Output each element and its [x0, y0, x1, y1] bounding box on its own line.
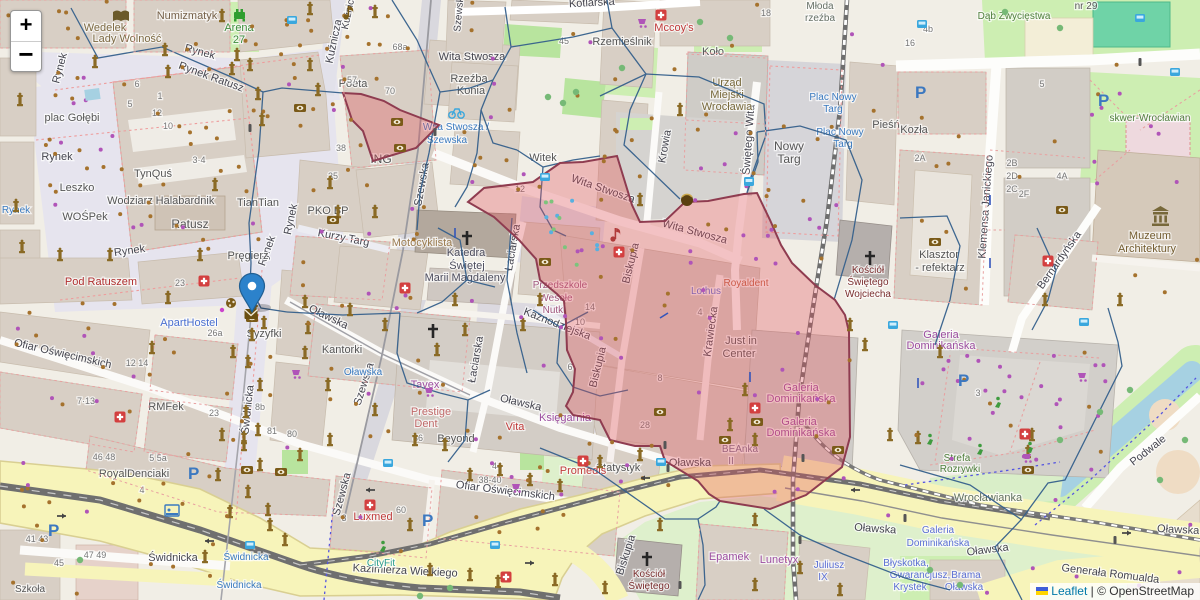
svg-text:38: 38 — [336, 143, 346, 153]
svg-text:P: P — [188, 464, 199, 483]
svg-text:Świdnicka: Świdnicka — [148, 551, 198, 564]
svg-text:41 43: 41 43 — [26, 534, 49, 544]
svg-text:8b: 8b — [255, 402, 265, 412]
svg-text:Motocyklista: Motocyklista — [392, 237, 453, 249]
svg-text:TianTian: TianTian — [237, 197, 279, 209]
svg-text:Rynek: Rynek — [41, 151, 73, 163]
svg-text:12 14: 12 14 — [126, 358, 149, 368]
svg-text:Brama: Brama — [951, 570, 981, 581]
svg-text:26a: 26a — [207, 328, 222, 338]
svg-text:18: 18 — [761, 8, 771, 18]
svg-text:Koło: Koło — [702, 46, 724, 58]
svg-text:P: P — [422, 511, 433, 530]
svg-text:4: 4 — [139, 485, 144, 495]
svg-text:Kościół: Kościół — [852, 265, 885, 276]
svg-text:P: P — [958, 371, 969, 390]
svg-text:RMFek: RMFek — [148, 401, 184, 413]
svg-text:2F: 2F — [1019, 189, 1030, 199]
svg-text:Prestige: Prestige — [411, 406, 451, 418]
svg-text:rzeźba: rzeźba — [805, 13, 835, 24]
svg-text:Galeria: Galeria — [922, 525, 955, 536]
svg-text:Świdnicka: Świdnicka — [223, 550, 268, 563]
svg-text:Kościół: Kościół — [633, 569, 666, 580]
svg-text:5: 5 — [127, 99, 132, 109]
svg-text:PKO BP: PKO BP — [308, 205, 349, 217]
svg-text:Klasztor: Klasztor — [919, 249, 959, 261]
svg-text:Beyond: Beyond — [437, 433, 474, 445]
svg-text:Arena: Arena — [224, 22, 254, 34]
svg-text:Kantorki: Kantorki — [322, 344, 362, 356]
svg-text:Pręgierz: Pręgierz — [228, 250, 269, 262]
svg-text:Wrocławia: Wrocławia — [702, 101, 753, 113]
svg-text:27: 27 — [233, 34, 245, 46]
svg-text:2B: 2B — [1006, 158, 1017, 168]
svg-text:Witek: Witek — [529, 152, 557, 164]
svg-text:68a: 68a — [392, 42, 407, 52]
svg-text:Dominikańska: Dominikańska — [907, 538, 970, 549]
svg-text:plac Gołębi: plac Gołębi — [44, 112, 99, 124]
svg-text:Katedra: Katedra — [447, 247, 486, 259]
svg-text:TynQuś: TynQuś — [134, 168, 172, 180]
svg-text:nr 29: nr 29 — [1075, 1, 1098, 12]
svg-text:57: 57 — [347, 75, 357, 85]
svg-text:Wodziarz: Wodziarz — [107, 195, 153, 207]
svg-text:Oławska: Oławska — [1157, 523, 1200, 537]
svg-text:6: 6 — [134, 79, 139, 89]
svg-text:Nutki: Nutki — [543, 305, 566, 316]
svg-text:2D: 2D — [1006, 171, 1018, 181]
svg-text:70: 70 — [385, 86, 395, 96]
svg-text:Juliusz: Juliusz — [814, 560, 845, 571]
svg-text:Miejski: Miejski — [710, 89, 744, 101]
svg-text:Oławska: Oławska — [344, 367, 383, 378]
svg-text:46 48: 46 48 — [93, 452, 116, 462]
svg-text:Plac Nowy: Plac Nowy — [809, 92, 856, 103]
svg-text:Nowy: Nowy — [774, 139, 804, 153]
svg-text:Świętego: Świętego — [847, 275, 889, 288]
svg-text:Vita: Vita — [506, 421, 526, 433]
svg-text:45: 45 — [54, 558, 64, 568]
svg-text:Świdnicka: Świdnicka — [216, 578, 261, 591]
svg-text:skwer-Wrocławian: skwer-Wrocławian — [1110, 113, 1191, 124]
svg-text:Szewska: Szewska — [427, 135, 467, 146]
svg-text:P: P — [1098, 91, 1109, 110]
svg-text:4A: 4A — [1056, 171, 1067, 181]
svg-text:Konia: Konia — [457, 85, 486, 97]
svg-text:2A: 2A — [914, 153, 925, 163]
svg-text:Lunetyx: Lunetyx — [760, 554, 799, 566]
svg-text:23: 23 — [209, 408, 219, 418]
svg-text:Świętego: Świętego — [628, 579, 670, 592]
svg-text:Urząd: Urząd — [712, 77, 741, 89]
svg-text:Targ: Targ — [823, 104, 842, 115]
svg-text:CityFit: CityFit — [367, 558, 396, 569]
svg-text:Dąb Zwycięstwa: Dąb Zwycięstwa — [978, 11, 1051, 22]
svg-text:80: 80 — [287, 429, 297, 439]
svg-text:Dent: Dent — [414, 418, 437, 430]
svg-text:Numizmatyk: Numizmatyk — [157, 10, 218, 22]
svg-text:Rozrywki: Rozrywki — [940, 464, 981, 475]
svg-text:Muzeum: Muzeum — [1129, 230, 1171, 242]
svg-text:16: 16 — [905, 38, 915, 48]
svg-text:10: 10 — [163, 121, 173, 131]
svg-text:Lady Wolność: Lady Wolność — [93, 33, 162, 45]
svg-text:Szkoła: Szkoła — [15, 584, 45, 595]
svg-text:Leszko: Leszko — [60, 182, 95, 194]
svg-text:P: P — [48, 521, 59, 540]
svg-text:Pod Ratuszem: Pod Ratuszem — [65, 276, 137, 288]
svg-text:60: 60 — [396, 505, 406, 515]
svg-text:Targ: Targ — [777, 152, 800, 166]
svg-text:3·4: 3·4 — [192, 155, 205, 165]
svg-text:2C: 2C — [1006, 184, 1018, 194]
svg-text:RoyalDenciaki: RoyalDenciaki — [99, 468, 169, 480]
svg-text:Wojciecha: Wojciecha — [845, 289, 891, 300]
svg-text:Halabardnik: Halabardnik — [156, 195, 215, 207]
svg-text:Błyskotka,: Błyskotka, — [883, 558, 929, 569]
svg-text:Świętej: Świętej — [449, 259, 484, 272]
svg-text:P: P — [915, 83, 926, 102]
svg-text:Młoda: Młoda — [806, 1, 834, 12]
svg-text:Architektury: Architektury — [1118, 243, 1177, 255]
svg-text:Mccoy's: Mccoy's — [654, 22, 694, 34]
svg-text:47 49: 47 49 — [84, 550, 107, 560]
svg-text:81: 81 — [267, 426, 277, 436]
svg-text:7·13: 7·13 — [77, 396, 95, 406]
svg-text:Wita Stwosza: Wita Stwosza — [439, 51, 507, 63]
svg-text:WOŚPek: WOŚPek — [62, 210, 108, 223]
svg-text:5: 5 — [1039, 79, 1044, 89]
svg-text:Epamek: Epamek — [709, 551, 750, 563]
svg-text:23: 23 — [175, 278, 185, 288]
svg-text:Strefa: Strefa — [944, 453, 971, 464]
svg-text:IX: IX — [818, 572, 828, 583]
svg-text:3: 3 — [975, 388, 980, 398]
svg-text:Krystek: Krystek — [893, 582, 927, 593]
svg-text:Oławska: Oławska — [945, 582, 984, 593]
svg-text:Pieśń: Pieśń — [872, 119, 900, 131]
svg-text:1: 1 — [157, 91, 162, 101]
